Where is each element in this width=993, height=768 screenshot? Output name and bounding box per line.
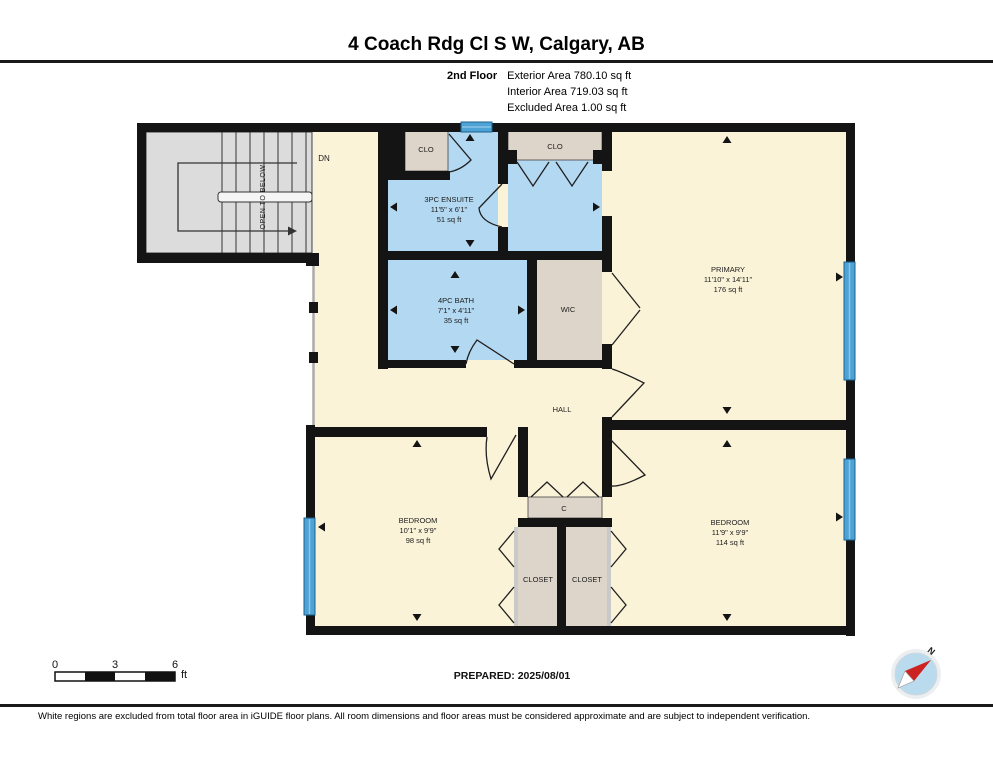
wall-segment <box>593 150 602 164</box>
room-label-ensuite: 3PC ENSUITE 11'5" x 6'1" 51 sq ft <box>424 195 473 225</box>
room-area: 176 sq ft <box>704 285 752 295</box>
wall-segment <box>602 216 612 272</box>
wall-segment <box>557 527 566 627</box>
label-closet-right: CLOSET <box>572 575 602 585</box>
label-c-closet: C <box>561 504 566 514</box>
room-dims: 10'1" x 9'9" <box>399 526 438 536</box>
wall-segment <box>388 171 450 180</box>
scale-unit: ft <box>181 669 187 681</box>
scale-tick-6: 6 <box>172 659 178 671</box>
wall-segment <box>527 251 537 368</box>
label-open-to-below: OPEN TO BELOW <box>259 165 269 230</box>
room-dims: 11'5" x 6'1" <box>424 205 473 215</box>
wall-segment <box>306 253 319 266</box>
wall-segment <box>518 427 528 497</box>
room-name: BEDROOM <box>399 516 438 526</box>
room-name: 3PC ENSUITE <box>424 195 473 205</box>
footer-disclaimer: White regions are excluded from total fl… <box>38 711 810 722</box>
footer-divider <box>0 704 993 707</box>
wall-segment <box>313 427 487 437</box>
room-name: PRIMARY <box>704 265 752 275</box>
prepared-date: PREPARED: 2025/08/01 <box>392 670 632 682</box>
room-area: 98 sq ft <box>399 536 438 546</box>
scale-tick-3: 3 <box>112 659 118 671</box>
compass-icon <box>893 651 939 697</box>
wall-segment <box>137 123 855 132</box>
room-dims: 7'1" x 4'11" <box>438 306 474 316</box>
room-area: 35 sq ft <box>438 316 474 326</box>
closet-left-frame <box>514 527 518 627</box>
wall-segment <box>378 131 388 369</box>
closet-right-frame <box>607 527 611 627</box>
room-name: 4PC BATH <box>438 296 474 306</box>
scale-bar <box>55 672 175 681</box>
label-wic: WIC <box>561 305 576 315</box>
wall-segment <box>378 251 612 260</box>
room-label-bedroom-left: BEDROOM 10'1" x 9'9" 98 sq ft <box>399 516 438 546</box>
wall-segment <box>498 131 508 184</box>
floor-plan-page: 4 Coach Rdg Cl S W, Calgary, AB 2nd Floo… <box>0 0 993 768</box>
wall-segment <box>514 360 612 368</box>
label-dn: DN <box>318 154 330 164</box>
wall-segment <box>612 420 846 430</box>
room-name: BEDROOM <box>711 518 750 528</box>
wall-segment <box>137 123 146 263</box>
floor-fills <box>146 131 846 627</box>
wall-segment <box>137 253 319 263</box>
wall-segment <box>306 626 855 635</box>
floor-plan-drawing <box>0 0 993 768</box>
room-dims: 11'10" x 14'11" <box>704 275 752 285</box>
wall-segment <box>602 417 612 431</box>
label-clo-ensuite: CLO <box>418 145 433 155</box>
room-area: 114 sq ft <box>711 538 750 548</box>
label-closet-left: CLOSET <box>523 575 553 585</box>
room-label-primary: PRIMARY 11'10" x 14'11" 176 sq ft <box>704 265 752 295</box>
wall-segment <box>378 360 466 368</box>
label-hall: HALL <box>553 405 572 415</box>
wall-segment <box>498 227 508 255</box>
room-label-bath: 4PC BATH 7'1" x 4'11" 35 sq ft <box>438 296 474 326</box>
scale-tick-0: 0 <box>52 659 58 671</box>
room-area: 51 sq ft <box>424 215 473 225</box>
room-label-bedroom-right: BEDROOM 11'9" x 9'9" 114 sq ft <box>711 518 750 548</box>
wall-segment <box>508 150 517 164</box>
room-dims: 11'9" x 9'9" <box>711 528 750 538</box>
wall-segment <box>602 131 612 171</box>
label-clo-vestibule: CLO <box>547 142 562 152</box>
wall-segment <box>518 518 612 527</box>
